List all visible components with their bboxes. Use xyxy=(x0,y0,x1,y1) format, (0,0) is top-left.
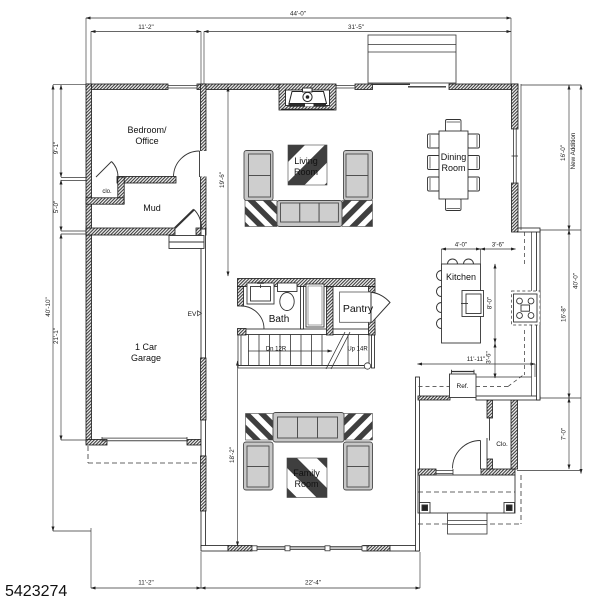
svg-text:EV: EV xyxy=(188,311,197,318)
svg-text:Room: Room xyxy=(441,163,465,173)
svg-text:Office: Office xyxy=(135,136,158,146)
svg-text:Bedroom/: Bedroom/ xyxy=(127,125,167,135)
svg-text:Pantry: Pantry xyxy=(343,303,374,315)
svg-text:Living: Living xyxy=(294,156,318,166)
svg-text:8'-0": 8'-0" xyxy=(487,297,494,310)
svg-text:Mud: Mud xyxy=(143,203,161,213)
svg-text:11'-2": 11'-2" xyxy=(138,24,154,31)
svg-text:4'-0": 4'-0" xyxy=(455,242,468,249)
svg-text:9'-1": 9'-1" xyxy=(53,142,60,155)
svg-text:21'-1": 21'-1" xyxy=(53,328,60,344)
svg-text:New Addition: New Addition xyxy=(570,132,577,169)
svg-text:5423274: 5423274 xyxy=(5,583,67,600)
svg-text:Family: Family xyxy=(293,468,320,478)
svg-text:40'-0": 40'-0" xyxy=(573,273,580,289)
svg-text:7'-0": 7'-0" xyxy=(561,428,568,441)
svg-text:Up 14R: Up 14R xyxy=(347,347,368,353)
svg-text:16'-8": 16'-8" xyxy=(561,306,568,322)
svg-text:1 Car: 1 Car xyxy=(135,342,157,352)
svg-text:Clo.: Clo. xyxy=(496,441,508,448)
svg-text:3'-6": 3'-6" xyxy=(492,242,505,249)
svg-text:Kitchen: Kitchen xyxy=(446,272,476,282)
svg-text:5'-0": 5'-0" xyxy=(53,201,60,214)
svg-text:Ref.: Ref. xyxy=(457,383,469,390)
svg-text:Dn 12R: Dn 12R xyxy=(266,347,287,353)
svg-text:19'-6": 19'-6" xyxy=(219,172,226,188)
svg-text:3'-6": 3'-6" xyxy=(486,351,493,364)
svg-text:11'-2": 11'-2" xyxy=(138,580,154,587)
svg-text:16'-0": 16'-0" xyxy=(560,145,567,161)
svg-text:clo.: clo. xyxy=(102,189,112,195)
svg-text:31'-5": 31'-5" xyxy=(348,24,364,31)
svg-text:Room: Room xyxy=(294,167,318,177)
svg-text:Room: Room xyxy=(294,479,318,489)
svg-text:40'-10": 40'-10" xyxy=(45,297,52,317)
svg-text:Bath: Bath xyxy=(269,314,290,325)
svg-text:22'-4": 22'-4" xyxy=(305,580,321,587)
svg-text:Garage: Garage xyxy=(131,353,161,363)
svg-text:44'-0": 44'-0" xyxy=(290,11,306,18)
svg-text:11'-11": 11'-11" xyxy=(467,356,486,363)
svg-text:18'-2": 18'-2" xyxy=(229,447,236,463)
svg-text:Dining: Dining xyxy=(441,152,467,162)
